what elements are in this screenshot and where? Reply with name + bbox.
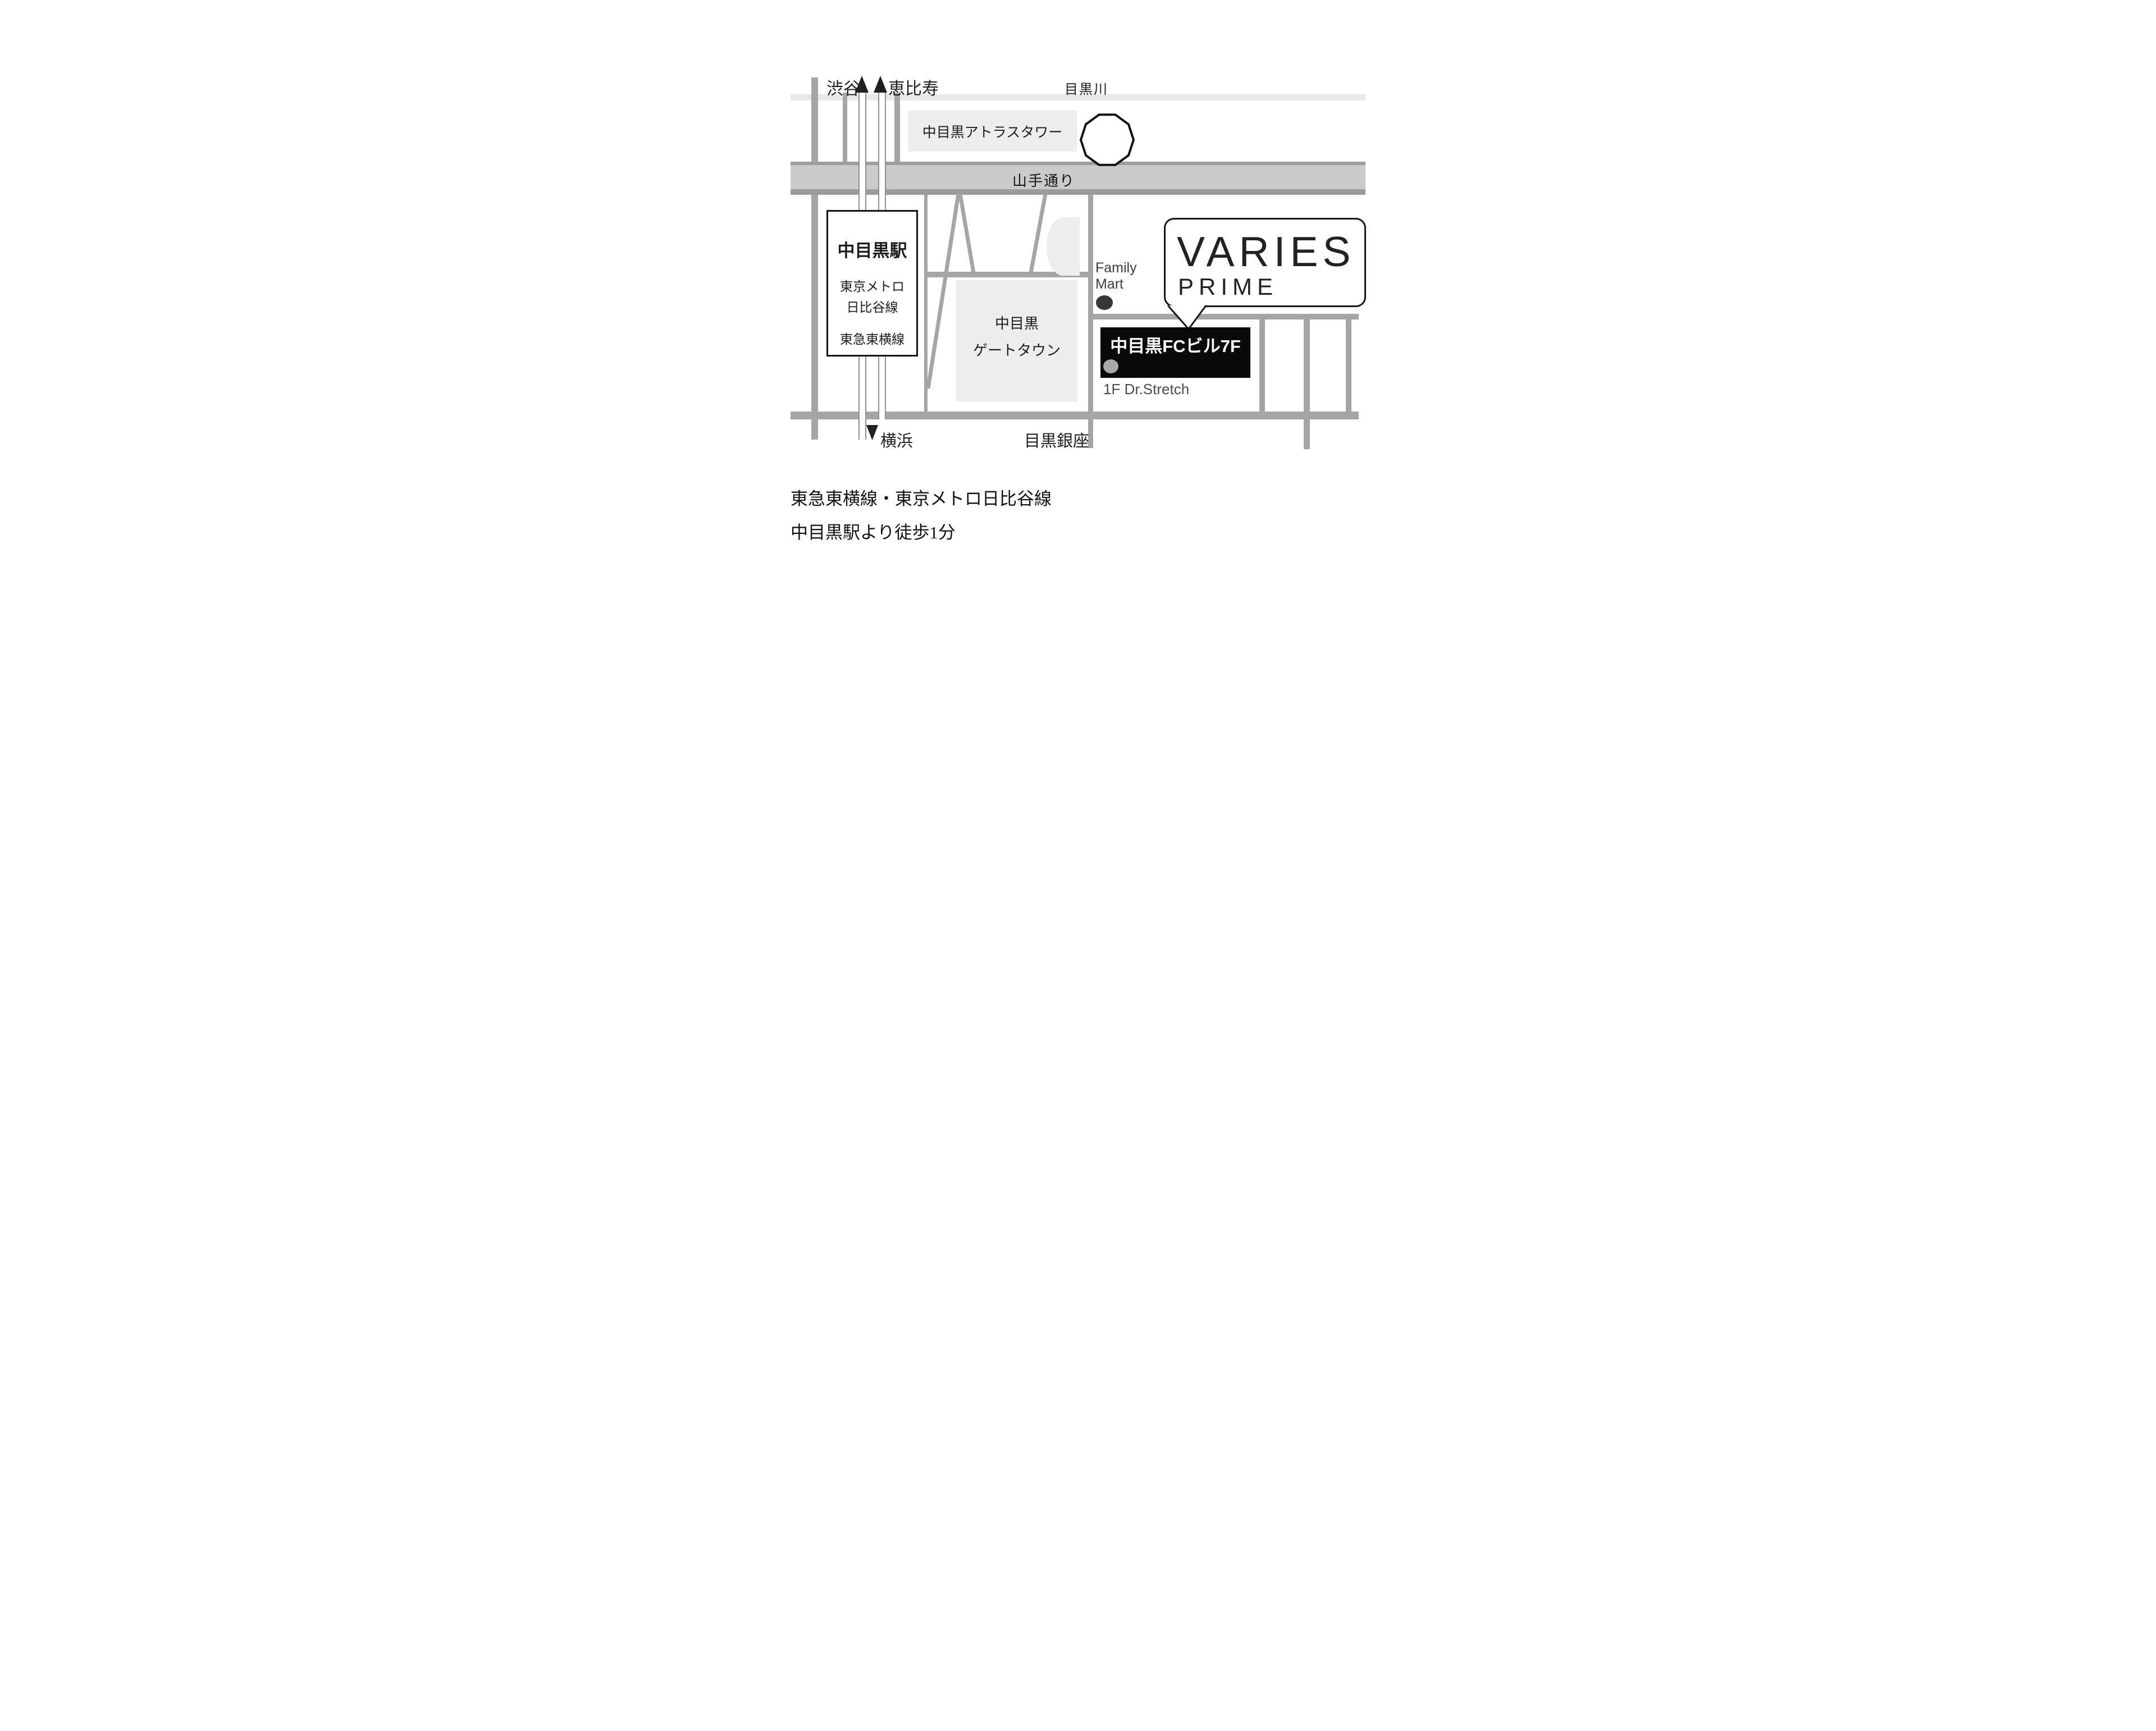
bottom-road xyxy=(791,412,1359,419)
label-yokohama: 横浜 xyxy=(880,428,913,451)
atlas-tower-label: 中目黒アトラスタワー xyxy=(922,121,1063,141)
family-mart-line1: Family xyxy=(1095,260,1137,276)
vertical-road-3 xyxy=(924,195,928,419)
station-line-hibiya: 日比谷線 xyxy=(828,296,916,316)
left-road-lower xyxy=(811,195,818,440)
family-mart-dot-icon xyxy=(1096,295,1113,310)
vertical-road-6 xyxy=(1304,319,1310,449)
family-mart-line2: Mart xyxy=(1095,276,1137,293)
vertical-road-2 xyxy=(894,93,900,162)
diagonal-road-3 xyxy=(1031,194,1045,273)
fc-building-label: 中目黒FCビル7F xyxy=(1100,332,1250,357)
label-meguro-river: 目黒川 xyxy=(1065,78,1108,98)
label-meguro-ginza: 目黒銀座 xyxy=(1024,428,1089,451)
gate-town-label-line1: 中目黒 xyxy=(956,312,1077,333)
station-line-metro: 東京メトロ xyxy=(828,276,916,295)
nakameguro-station-box: 中目黒駅 東京メトロ 日比谷線 東急東横線 xyxy=(826,210,918,357)
prime-logo-text: PRIME xyxy=(1178,273,1278,300)
fc-building-box: 中目黒FCビル7F xyxy=(1100,327,1250,378)
diagonal-road-2 xyxy=(960,194,974,273)
varies-logo-text: VARIES xyxy=(1177,227,1355,276)
vertical-road-1 xyxy=(843,93,847,162)
yamate-road xyxy=(791,165,1365,189)
label-shibuya: 渋谷 xyxy=(826,75,860,99)
gate-town-label-line2: ゲートタウン xyxy=(956,339,1077,360)
label-yamate-dori: 山手通り xyxy=(1012,170,1075,190)
station-name: 中目黒駅 xyxy=(828,236,916,262)
vertical-road-5 xyxy=(1259,319,1265,419)
fc-building-dot-icon xyxy=(1103,359,1118,373)
access-caption-line1: 東急東横線・東京メトロ日比谷線 xyxy=(791,485,1052,510)
access-caption-line2: 中目黒駅より徒歩1分 xyxy=(791,518,956,543)
direction-down-triangle-icon xyxy=(866,425,878,440)
vertical-road-7 xyxy=(1346,319,1351,419)
station-line-toyoko: 東急東横線 xyxy=(828,328,916,348)
label-dr-stretch: 1F Dr.Stretch xyxy=(1103,381,1189,398)
vertical-road-4 xyxy=(1088,195,1093,448)
horizontal-road-right xyxy=(1088,314,1359,319)
diagonal-road-1 xyxy=(928,194,958,389)
varies-prime-callout: VARIES PRIME xyxy=(1164,218,1366,307)
yamate-road-bottom-edge xyxy=(791,189,1365,195)
pond-icon xyxy=(1081,115,1134,165)
access-map: 中目黒アトラスタワー 中目黒 ゲートタウン 中目黒駅 東京メトロ 日比谷線 東急… xyxy=(719,0,1437,577)
left-road-upper xyxy=(811,77,818,162)
gate-town-building: 中目黒 ゲートタウン xyxy=(956,280,1077,401)
rounded-building xyxy=(1047,217,1080,276)
label-ebisu: 恵比寿 xyxy=(888,75,939,99)
atlas-tower-building: 中目黒アトラスタワー xyxy=(908,111,1077,152)
label-family-mart: Family Mart xyxy=(1095,260,1137,293)
